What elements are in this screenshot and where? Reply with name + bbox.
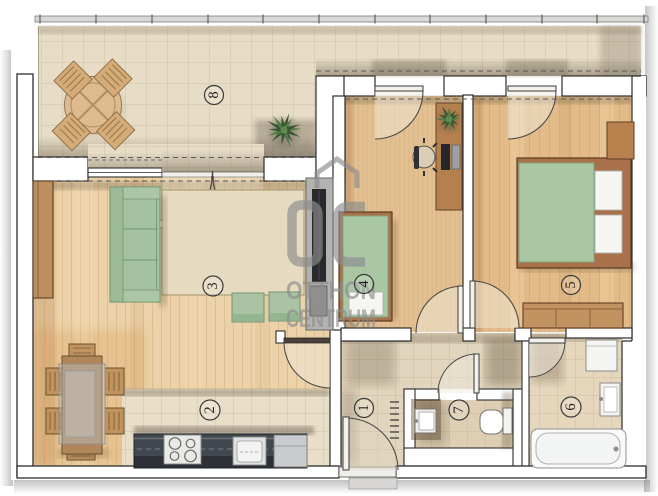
svg-text:5: 5	[563, 281, 579, 288]
svg-text:8: 8	[206, 91, 222, 98]
svg-text:4: 4	[356, 280, 372, 288]
svg-text:3: 3	[205, 282, 221, 289]
svg-text:6: 6	[563, 403, 579, 410]
svg-text:7: 7	[451, 406, 467, 413]
svg-text:2: 2	[202, 406, 218, 413]
svg-text:1: 1	[356, 404, 372, 411]
svg-text:CENTRUM: CENTRUM	[286, 305, 376, 333]
